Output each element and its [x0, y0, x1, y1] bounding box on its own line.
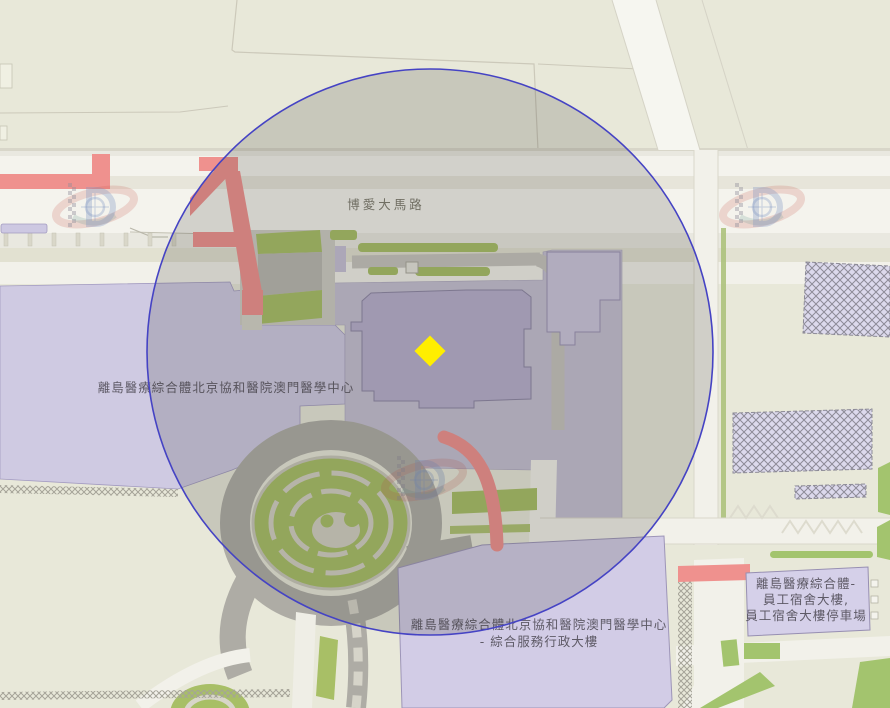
dorm-label-line1: 離島醫療綜合體- [756, 576, 856, 591]
map-canvas: 博愛大馬路 離島醫療綜合體北京協和醫院澳門醫學中心 離島醫療綜合體北京協和醫院澳… [0, 0, 890, 708]
admin-building-label-line2: - 綜合服務行政大樓 [480, 634, 598, 649]
dorm-label-line3: 員工宿舍大樓停車場 [745, 608, 867, 623]
construction-hatch-area-1 [803, 262, 890, 337]
map-viewport[interactable]: 博愛大馬路 離島醫療綜合體北京協和醫院澳門醫學中心 離島醫療綜合體北京協和醫院澳… [0, 0, 890, 708]
walkway-red-east [678, 564, 750, 582]
construction-hatch-area-3 [795, 484, 866, 499]
dorm-label-line2: 員工宿舍大樓, [763, 592, 849, 607]
construction-hatch-area-2 [733, 409, 872, 473]
green-verge-strip [721, 228, 726, 544]
platform-strip [1, 224, 47, 233]
